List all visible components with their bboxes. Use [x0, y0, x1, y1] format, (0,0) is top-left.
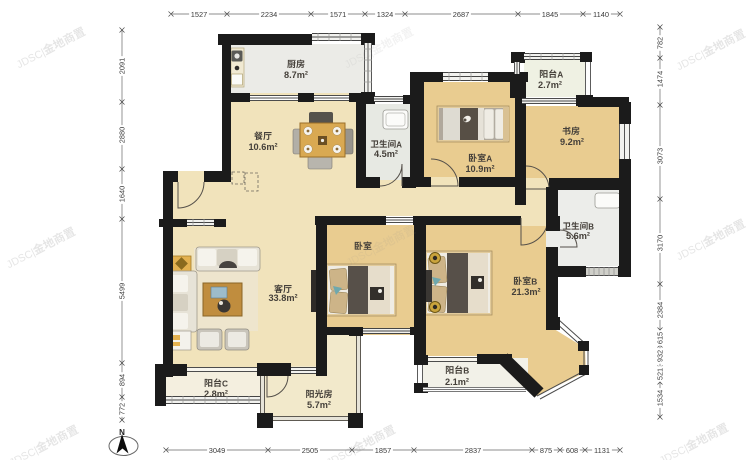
svg-text:2.8m²: 2.8m² — [204, 389, 228, 399]
svg-text:2505: 2505 — [302, 446, 318, 455]
svg-text:5.7m²: 5.7m² — [307, 400, 331, 410]
svg-text:894: 894 — [118, 374, 127, 386]
svg-text:615: 615 — [656, 332, 665, 344]
svg-text:2837: 2837 — [465, 446, 481, 455]
svg-text:932: 932 — [656, 350, 665, 362]
svg-text:8.7m²: 8.7m² — [284, 70, 308, 80]
svg-text:A: A — [557, 70, 563, 80]
svg-text:B: B — [531, 277, 537, 287]
svg-text:1857: 1857 — [375, 446, 391, 455]
svg-text:1640: 1640 — [118, 186, 127, 202]
svg-text:4.5m²: 4.5m² — [374, 149, 398, 159]
svg-text:3049: 3049 — [209, 446, 225, 455]
svg-text:1474: 1474 — [656, 71, 665, 87]
svg-text:21.3m²: 21.3m² — [511, 287, 540, 297]
svg-text:1534: 1534 — [656, 390, 665, 406]
svg-text:5499: 5499 — [118, 283, 127, 299]
svg-text:2880: 2880 — [118, 127, 127, 143]
svg-text:2687: 2687 — [453, 10, 469, 19]
svg-text:1571: 1571 — [330, 10, 346, 19]
svg-text:N: N — [119, 428, 125, 437]
svg-text:782: 782 — [656, 37, 665, 49]
svg-text:10.9m²: 10.9m² — [465, 164, 494, 174]
svg-text:3170: 3170 — [656, 235, 665, 251]
svg-text:1324: 1324 — [377, 10, 393, 19]
svg-text:521: 521 — [656, 368, 665, 380]
svg-text:1845: 1845 — [542, 10, 558, 19]
svg-text:772: 772 — [118, 403, 127, 415]
svg-text:2091: 2091 — [118, 58, 127, 74]
svg-text:1131: 1131 — [594, 446, 610, 455]
svg-text:875: 875 — [540, 446, 552, 455]
svg-text:9.2m²: 9.2m² — [560, 137, 584, 147]
svg-text:2384: 2384 — [656, 302, 665, 318]
svg-text:2.7m²: 2.7m² — [538, 80, 562, 90]
svg-text:B: B — [463, 366, 469, 376]
svg-text:1527: 1527 — [191, 10, 207, 19]
svg-text:2.1m²: 2.1m² — [445, 377, 469, 387]
svg-text:3073: 3073 — [656, 148, 665, 164]
svg-text:1140: 1140 — [593, 10, 609, 19]
svg-text:A: A — [486, 154, 492, 164]
svg-text:2234: 2234 — [261, 10, 277, 19]
svg-text:608: 608 — [566, 446, 578, 455]
svg-text:33.8m²: 33.8m² — [268, 293, 297, 303]
svg-text:5.6m²: 5.6m² — [566, 231, 590, 241]
svg-text:10.6m²: 10.6m² — [248, 142, 277, 152]
svg-text:C: C — [222, 379, 228, 389]
